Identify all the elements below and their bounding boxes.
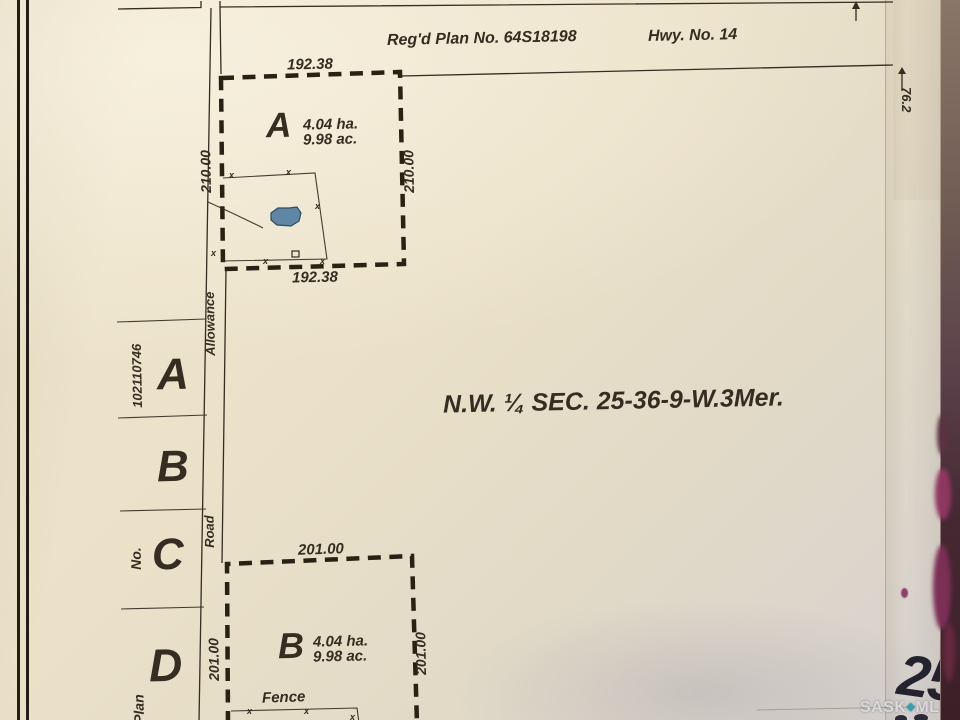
- section-label: N.W. ¼ SEC. 25-36-9-W.3Mer.: [443, 385, 784, 417]
- road-allowance-word-bottom: Road: [202, 515, 216, 548]
- parcel-b-dim-right: 201.00: [413, 632, 428, 675]
- torn-page-edge: [940, 0, 960, 720]
- parcel-b-area-ac: 9.98 ac.: [313, 648, 368, 664]
- plan-labels: Reg'd Plan No. 64S18198 Hwy. No. 14 76.2…: [0, 0, 960, 720]
- parcel-a-name: A: [266, 108, 292, 144]
- road-allowance-word-top: Allowance: [203, 291, 217, 356]
- magenta-stain: [935, 468, 951, 520]
- parcel-b-dim-left: 201.00: [206, 638, 221, 681]
- parcel-a-dim-top: 192.38: [287, 57, 333, 73]
- magenta-stain: [933, 545, 951, 630]
- parcel-a-dim-right: 210.00: [401, 150, 416, 193]
- edge-stain: [943, 622, 955, 682]
- parcel-a-area-ac: 9.98 ac.: [303, 131, 358, 147]
- plan-word-label: Plan: [131, 694, 146, 720]
- offset-dimension-label: 76.2: [900, 87, 913, 112]
- regd-plan-label: Reg'd Plan No. 64S18198: [387, 29, 577, 49]
- survey-plan-scan: x x x x x x x x x Reg'd Plan No. 64S1819…: [0, 0, 960, 720]
- edge-stain: [937, 415, 947, 455]
- watermark-sask-text: SASK: [860, 699, 906, 716]
- parcel-b-name: B: [278, 628, 305, 665]
- lot-label-a: A: [157, 353, 190, 398]
- parcel-a-dim-bottom: 192.38: [292, 270, 338, 286]
- plan-number-label: 102110746: [130, 344, 144, 408]
- highway-label: Hwy. No. 14: [648, 27, 738, 45]
- no-word-label: No.: [129, 547, 143, 570]
- fence-label: Fence: [262, 689, 306, 706]
- parcel-a-dim-left: 210.00: [198, 150, 213, 193]
- lot-label-d: D: [149, 642, 183, 689]
- lot-label-b: B: [157, 445, 190, 490]
- lot-label-c: C: [152, 533, 185, 578]
- parcel-b-dim-top: 201.00: [298, 541, 344, 558]
